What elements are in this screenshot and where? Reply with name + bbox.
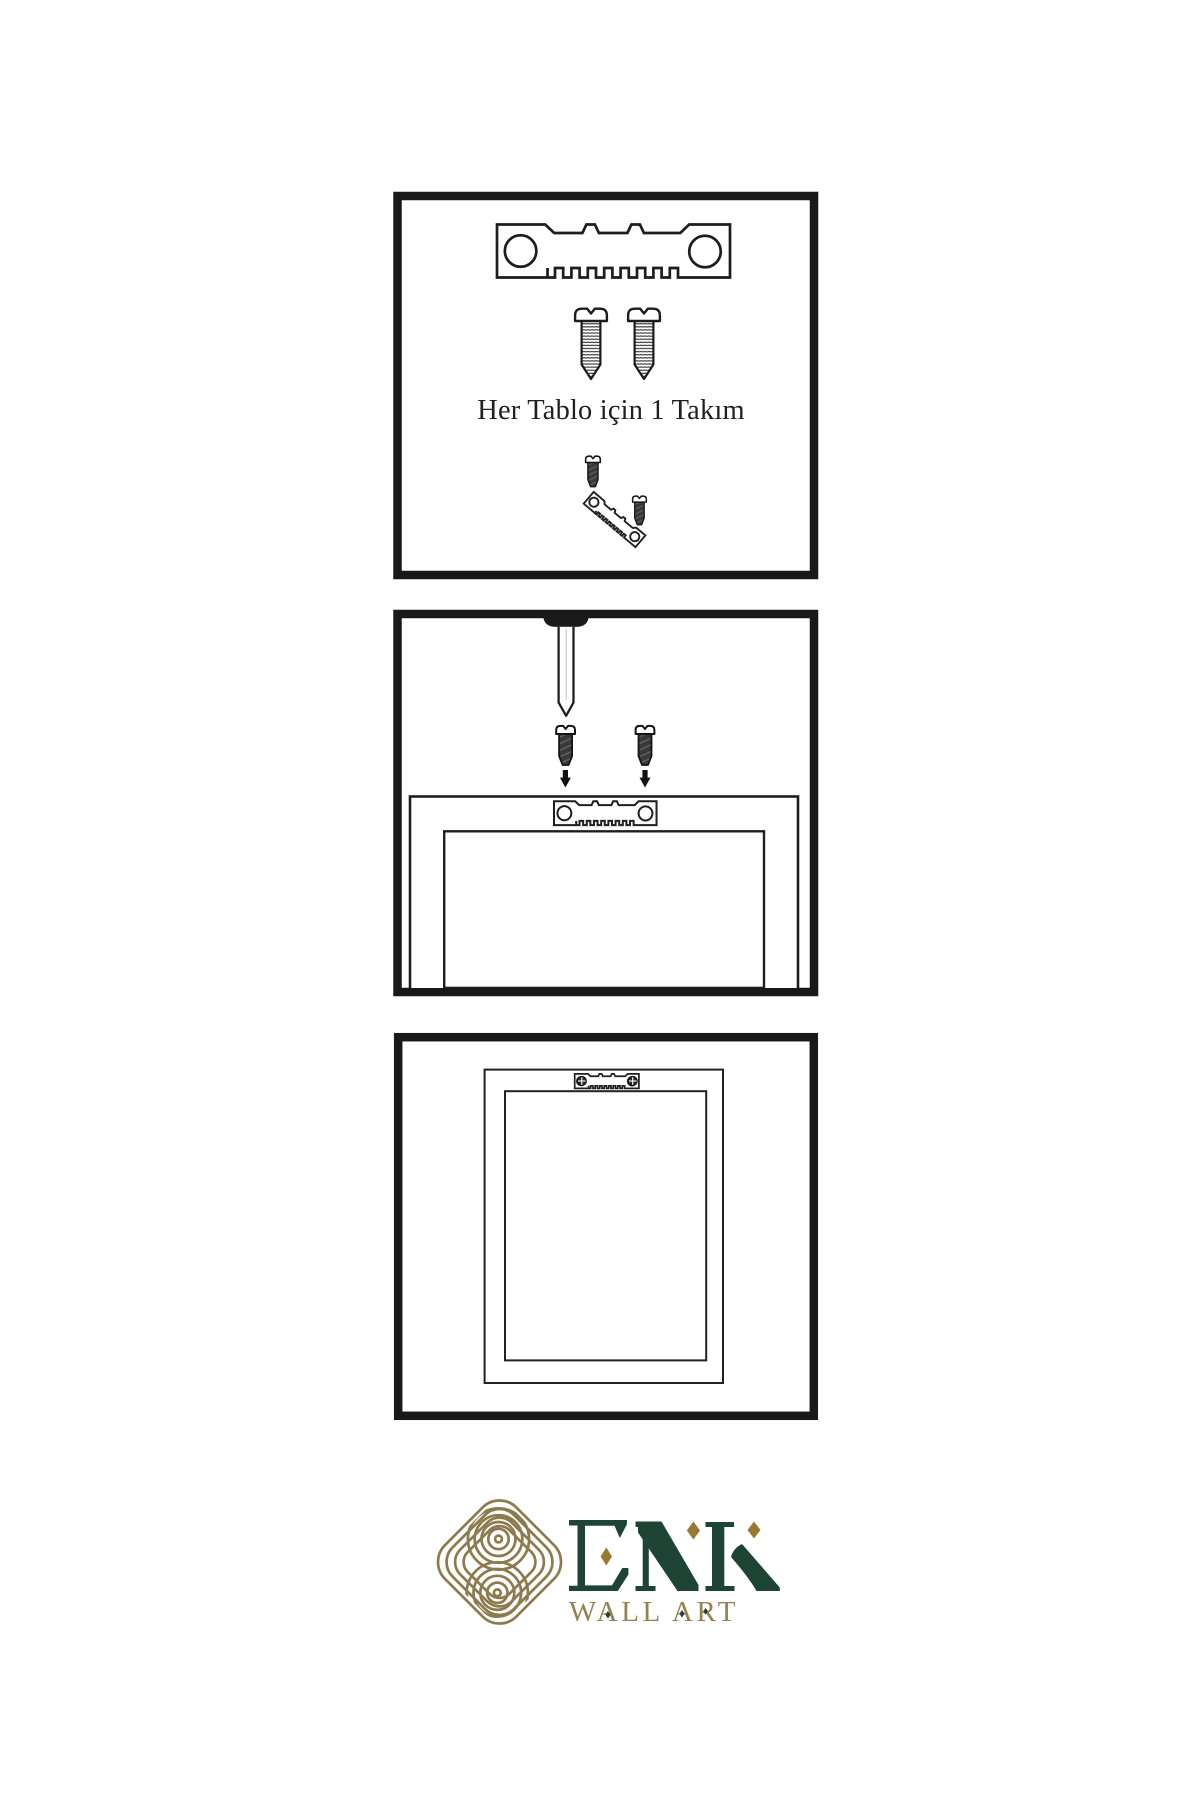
svg-text:WALL ART: WALL ART bbox=[569, 1596, 739, 1628]
svg-text:Her Tablo için 1 Takım: Her Tablo için 1 Takım bbox=[477, 395, 744, 426]
